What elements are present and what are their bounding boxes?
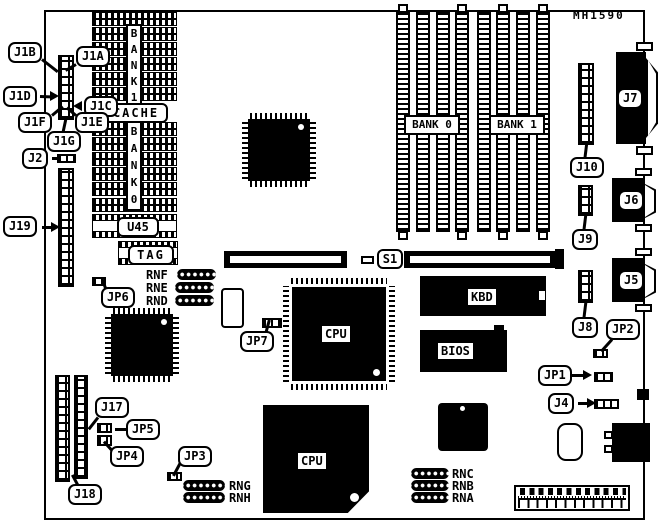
qfp-chip: [105, 308, 179, 382]
j9-header: [578, 185, 593, 216]
simm-tab: [457, 4, 467, 13]
rnh-network: [183, 492, 225, 503]
kbd-notch: [539, 291, 545, 300]
s1-label: S1: [377, 249, 403, 269]
rna-label: RNA: [452, 491, 474, 505]
callout-j1e: J1E: [75, 112, 109, 133]
rnd-label: RND: [146, 294, 168, 308]
callout-tail: [52, 157, 59, 160]
simm-tab: [398, 4, 408, 13]
j2-jumper: [57, 154, 76, 163]
callout-jp6: JP6: [101, 287, 135, 308]
callout-j9: J9: [572, 229, 598, 250]
bracket-tab: [635, 168, 652, 176]
j6-shell: [643, 183, 656, 219]
rne-label: RNE: [146, 281, 168, 295]
callout-tail: [115, 428, 126, 431]
cpu-secondary-label: CPU: [296, 451, 328, 471]
qfp-chip: [242, 113, 316, 187]
edge-nub: [637, 389, 649, 400]
din-tab: [604, 445, 613, 453]
callout-jp2: JP2: [606, 319, 640, 340]
simm-tab: [498, 231, 508, 240]
j8-header: [578, 270, 593, 303]
callout-j1a: J1A: [76, 46, 110, 67]
callout-j1f: J1F: [18, 112, 52, 133]
tag-label: TAG: [128, 245, 174, 265]
pin1-dot: [460, 406, 465, 411]
bank1-cache-label: BANK1: [126, 24, 142, 105]
callout-j18: J18: [68, 484, 102, 505]
callout-j2: J2: [22, 148, 48, 169]
j5-label: J5: [618, 270, 644, 291]
bracket-tab: [635, 224, 652, 232]
j5-shell: [643, 263, 656, 299]
keyboard-din-connector: [612, 423, 650, 462]
callout-j1g: J1G: [47, 131, 81, 152]
rnf-network: [177, 269, 216, 280]
callout-arrow: [50, 91, 59, 101]
j18-header: [55, 375, 70, 482]
slot-endcap: [555, 249, 564, 269]
callout-j10: J10: [570, 157, 604, 178]
rnd-network: [175, 295, 214, 306]
bank1-simm-label: BANK 1: [489, 115, 545, 135]
bios-label: BIOS: [436, 341, 475, 361]
rng-network: [183, 480, 225, 491]
rnc-network: [411, 468, 449, 479]
simm-tab: [538, 4, 548, 13]
bank0-cache-label: BANK0: [126, 121, 142, 211]
j10-header: [578, 63, 594, 145]
callout-j19: J19: [3, 216, 37, 237]
j19-header: [58, 168, 74, 287]
callout-j4: J4: [548, 393, 574, 414]
kbd-label: KBD: [466, 287, 498, 307]
rna-network: [411, 492, 449, 503]
slot-segment: [361, 256, 374, 264]
board-code: MH1590: [573, 9, 625, 22]
callout-j8: J8: [572, 317, 598, 338]
callout-j1b: J1B: [8, 42, 42, 63]
slot-opening: [230, 256, 341, 263]
bracket-tab: [636, 146, 653, 155]
callout-jp1: JP1: [538, 365, 572, 386]
simm-tab: [398, 231, 408, 240]
callout-arrow: [51, 222, 60, 232]
slot-opening: [410, 256, 550, 263]
jp5-jumper: [97, 423, 112, 433]
u45-label: U45: [117, 217, 159, 237]
j7-label: J7: [617, 88, 643, 109]
bracket-tab: [635, 304, 652, 312]
j17-header: [74, 375, 88, 479]
bank0-simm-label: BANK 0: [404, 115, 460, 135]
rne-network: [175, 282, 214, 293]
callout-jp7: JP7: [240, 331, 274, 352]
simm-tab: [498, 4, 508, 13]
rnh-label: RNH: [229, 491, 251, 505]
callout-arrow: [587, 398, 596, 408]
callout-jp5: JP5: [126, 419, 160, 440]
simm-tab: [457, 231, 467, 240]
callout-j1d: J1D: [3, 86, 37, 107]
j4-header: [594, 399, 619, 409]
oscillator: [221, 288, 244, 328]
cpu-main-label: CPU: [320, 324, 352, 344]
j7-shell: [646, 58, 658, 138]
callout-jp4: JP4: [110, 446, 144, 467]
motherboard-diagram: MH1590 BANK1 BANK0 CACHE U45 TAG BANK 0 …: [0, 0, 666, 527]
rnf-label: RNF: [146, 268, 168, 282]
pin1-dot: [350, 493, 359, 502]
power-connector: [514, 485, 630, 511]
jp1-jumper: [594, 372, 613, 382]
battery: [557, 423, 583, 461]
j6-label: J6: [618, 190, 644, 211]
din-tab: [604, 431, 613, 439]
simm-tab: [538, 231, 548, 240]
callout-j17: J17: [95, 397, 129, 418]
callout-jp3: JP3: [178, 446, 212, 467]
callout-arrow: [73, 101, 82, 111]
bracket-tab: [636, 42, 653, 51]
rnb-network: [411, 480, 449, 491]
bracket-tab: [635, 248, 652, 256]
callout-arrow: [583, 370, 592, 380]
